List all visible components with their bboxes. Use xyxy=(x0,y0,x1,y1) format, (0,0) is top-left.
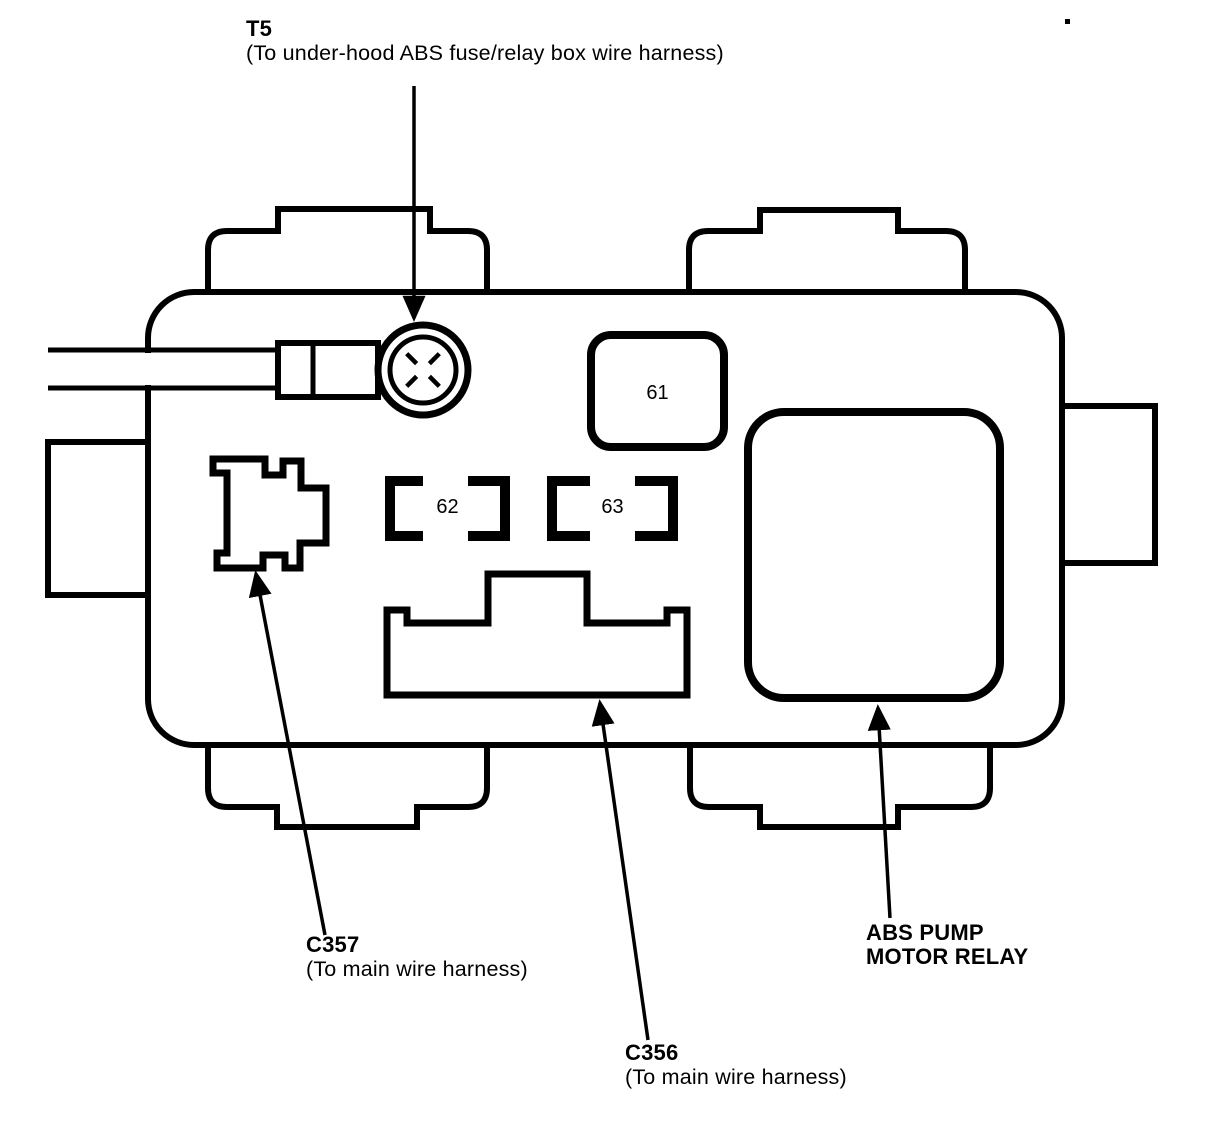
side-bracket-left xyxy=(48,442,148,595)
diagram-line-art xyxy=(0,0,1216,1148)
callout-t5: T5 (To under-hood ABS fuse/relay box wir… xyxy=(246,16,724,66)
callout-c356-desc: (To main wire harness) xyxy=(625,1065,847,1090)
callout-c356-id: C356 xyxy=(625,1040,847,1065)
mounting-tab-top-right xyxy=(689,210,965,292)
relay-61-number: 61 xyxy=(591,337,724,449)
callout-t5-id: T5 xyxy=(246,16,724,41)
relay-63-number: 63 xyxy=(552,478,673,536)
callout-t5-desc: (To under-hood ABS fuse/relay box wire h… xyxy=(246,41,724,66)
abs-fuse-relay-box-diagram: T5 (To under-hood ABS fuse/relay box wir… xyxy=(0,0,1216,1148)
mounting-tab-bottom-left xyxy=(208,745,487,827)
mounting-tab-top-left xyxy=(208,209,487,292)
mounting-tab-bottom-right xyxy=(690,745,990,827)
callout-abs-line1: ABS PUMP xyxy=(866,921,1028,945)
side-bracket-right xyxy=(1062,406,1155,563)
callout-c356: C356 (To main wire harness) xyxy=(625,1040,847,1090)
wire-body xyxy=(48,353,280,385)
relay-62-number: 62 xyxy=(385,478,510,536)
print-artifact-dot xyxy=(1065,19,1070,24)
callout-c357: C357 (To main wire harness) xyxy=(306,932,528,982)
callout-c357-id: C357 xyxy=(306,932,528,957)
arrow-c356 xyxy=(600,703,648,1040)
callout-abs-line2: MOTOR RELAY xyxy=(866,945,1028,969)
callout-c357-desc: (To main wire harness) xyxy=(306,957,528,982)
callout-abs-pump-motor-relay: ABS PUMP MOTOR RELAY xyxy=(866,921,1028,969)
terminal-ferrule xyxy=(278,343,378,397)
